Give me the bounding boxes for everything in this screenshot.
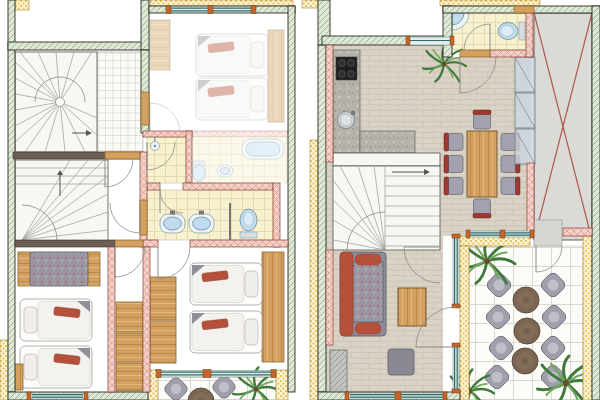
- bed: [20, 346, 92, 388]
- sofa-armrest: [18, 252, 31, 286]
- window-bottom: [345, 392, 447, 400]
- wardrobe: [116, 302, 143, 332]
- floor-plan-image: Two-storey holiday apartment — colour fl…: [0, 0, 600, 400]
- kitchen-counter: [360, 131, 415, 153]
- bed: [190, 311, 262, 353]
- bed: [20, 299, 92, 341]
- door-sill: [140, 200, 147, 235]
- winder-staircase: [333, 153, 440, 250]
- dining-chair: [473, 199, 491, 218]
- exterior-wall: [8, 0, 15, 392]
- ghost-bed-2: [196, 78, 268, 120]
- window-bottom: [27, 392, 88, 400]
- sofa-cushion: [355, 254, 381, 265]
- dining-chair: [444, 155, 463, 173]
- glass-cabinets: [515, 57, 535, 164]
- wardrobe: [116, 333, 143, 362]
- kitchen-window: [406, 36, 454, 45]
- cooktop: [336, 57, 357, 80]
- terrace-border: [460, 246, 469, 400]
- winder-staircase-upper: [15, 52, 97, 152]
- headboard-shelf: [262, 252, 284, 362]
- sofa-backrest-blanket: [340, 252, 353, 336]
- threshold-path: [534, 220, 562, 246]
- wardrobe: [116, 363, 143, 391]
- window-top: [166, 6, 256, 14]
- wardrobe: [150, 321, 176, 363]
- exterior-wall: [592, 6, 600, 400]
- sofa: [30, 252, 88, 286]
- door-sill: [460, 50, 490, 57]
- terrace-border: [460, 236, 530, 246]
- exterior-wall: [288, 6, 295, 392]
- stair-landing-tiles: [97, 52, 143, 152]
- floor-plan-svg: Two-storey holiday apartment — colour fl…: [0, 0, 600, 400]
- sofa-cushion: [355, 323, 381, 334]
- ghost-bed-1: [196, 34, 268, 76]
- round-table: [513, 287, 539, 313]
- exterior-wall: [318, 45, 326, 392]
- dining-table: [467, 131, 497, 197]
- dining-chair: [444, 177, 463, 195]
- door-sill: [141, 92, 149, 125]
- balcony-glazing: [156, 370, 276, 378]
- planter-box: [330, 350, 347, 393]
- bedroom-southwest: [15, 252, 100, 390]
- door-sill: [105, 152, 140, 159]
- coffee-table: [398, 288, 426, 326]
- bed: [190, 263, 262, 305]
- terrace-border: [583, 236, 592, 400]
- ghost-headboard: [268, 30, 284, 122]
- plan-sleeping-level: [0, 0, 295, 400]
- winder-staircase-lower: [15, 160, 108, 242]
- sofa-armrest: [87, 252, 100, 286]
- ghost-wardrobe: [150, 20, 170, 70]
- wardrobe: [150, 277, 176, 320]
- dining-chair: [501, 177, 520, 195]
- hallway-wardrobes: [116, 302, 143, 391]
- terrace-top-glazing: [466, 230, 534, 238]
- dining-chair: [444, 133, 463, 151]
- ghost-toilet: [193, 165, 206, 182]
- round-table: [514, 318, 540, 344]
- round-table: [512, 348, 538, 374]
- pouf: [388, 349, 414, 375]
- door-sill: [514, 6, 534, 13]
- dining-chair: [473, 110, 491, 129]
- nightstand: [15, 364, 23, 390]
- stair-landing: [333, 153, 440, 166]
- door-sill: [115, 240, 143, 247]
- balcony-side-wall: [276, 370, 288, 400]
